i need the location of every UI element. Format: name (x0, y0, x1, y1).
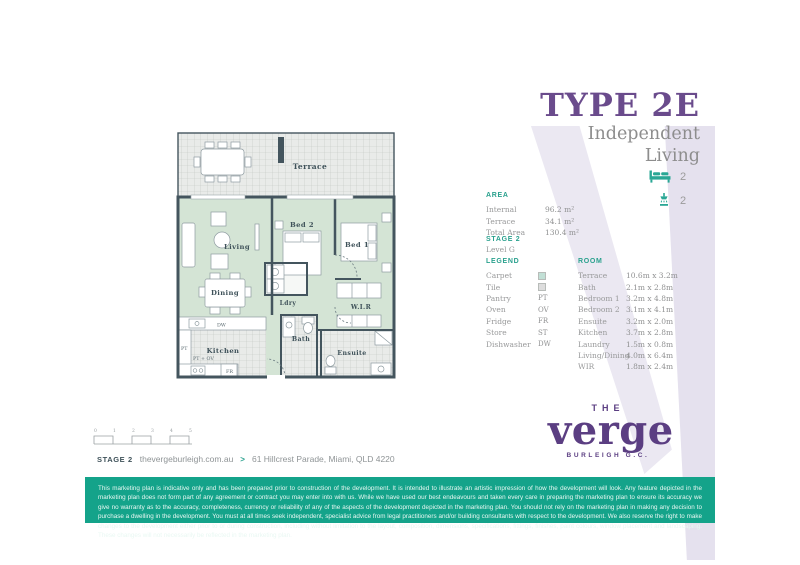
legend-row: Dishwasher DW (486, 338, 576, 349)
disclaimer-text: This marketing plan is indicative only a… (98, 484, 702, 541)
living-label: Living (224, 243, 250, 251)
stage-level: Level G (486, 245, 616, 254)
legend-heading: LEGEND (486, 258, 576, 265)
logo-name: verge (548, 413, 668, 449)
pt-ov-code-label: PT + OV (193, 356, 214, 362)
footer-website: thevergeburleigh.com.au (140, 454, 234, 464)
bath-label: Bath (292, 336, 310, 343)
legend-label: Pantry (486, 294, 538, 303)
room-dims: 4.0m x 6.4m (626, 351, 673, 360)
room-row: Bedroom 2 3.1m x 4.1m (578, 304, 703, 315)
dining-label: Dining (211, 289, 239, 297)
page-title: TYPE 2E (540, 86, 700, 124)
dw-code-label: DW (217, 323, 226, 329)
legend-code: PT (538, 294, 547, 302)
bed-icon (649, 168, 671, 187)
scale-tick-1: 1 (113, 428, 116, 434)
bath-count: 2 (680, 195, 688, 207)
area-row-value: 96.2 m² (545, 205, 574, 214)
footer-address: 61 Hillcrest Parade, Miami, QLD 4220 (252, 454, 395, 464)
page-subtitle-line2: Living (645, 146, 700, 166)
marketing-plan-page: TYPE 2E Independent Living 2 (0, 0, 800, 565)
room-dims: 1.5m x 0.8m (626, 340, 673, 349)
footer: STAGE 2 thevergeburleigh.com.au > 61 Hil… (97, 454, 395, 464)
room-row: WIR 1.8m x 2.4m (578, 361, 703, 372)
legend-label: Oven (486, 305, 538, 314)
room-name: Laundry (578, 340, 626, 349)
pt-code-label: PT (181, 346, 188, 352)
legend-row: Pantry PT (486, 293, 576, 304)
bed1-label: Bed 1 (345, 241, 369, 249)
room-section: ROOM Terrace 10.6m x 3.2m Bath 2.1m x 2.… (578, 258, 703, 373)
room-row: Bath 2.1m x 2.8m (578, 281, 703, 292)
room-dims: 3.2m x 2.0m (626, 317, 673, 326)
area-row-label: Terrace (486, 217, 545, 226)
footer-stage-label: STAGE 2 (97, 455, 133, 464)
room-row: Ensuite 3.2m x 2.0m (578, 316, 703, 327)
ensuite-label: Ensuite (337, 350, 366, 357)
legend-row: Oven OV (486, 304, 576, 315)
legend-label: Tile (486, 283, 538, 292)
disclaimer-bar: This marketing plan is indicative only a… (85, 477, 715, 523)
legend-code: ST (538, 329, 547, 337)
room-name: Living/Dining (578, 351, 626, 360)
room-name: Kitchen (578, 328, 626, 337)
room-name: Bedroom 2 (578, 305, 626, 314)
area-heading: AREA (486, 192, 616, 199)
room-row: Laundry 1.5m x 0.8m (578, 338, 703, 349)
legend-code: DW (538, 340, 551, 348)
scale-tick-2: 2 (132, 428, 135, 434)
area-row: Internal 96.2 m² (486, 204, 616, 215)
legend-label: Fridge (486, 317, 538, 326)
wir-label: W.I.R (350, 304, 372, 311)
kitchen-label: Kitchen (207, 347, 240, 355)
area-row-value: 34.1 m² (545, 217, 574, 226)
room-name: Bath (578, 283, 626, 292)
scale-tick-3: 3 (151, 428, 154, 434)
room-dims: 1.8m x 2.4m (626, 362, 673, 371)
legend-row: Tile (486, 281, 576, 292)
room-dims: 3.7m x 2.8m (626, 328, 673, 337)
room-name: Terrace (578, 271, 626, 280)
fr-code-label: FR (226, 369, 233, 375)
bed2-label: Bed 2 (290, 221, 314, 229)
chevron-right-icon: > (240, 455, 245, 464)
bedroom-count-row: 2 (649, 165, 688, 189)
room-row: Living/Dining 4.0m x 6.4m (578, 350, 703, 361)
legend-row: Store ST (486, 327, 576, 338)
room-row: Terrace 10.6m x 3.2m (578, 270, 703, 281)
legend-label: Store (486, 328, 538, 337)
room-dims: 10.6m x 3.2m (626, 271, 678, 280)
room-name: Bedroom 1 (578, 294, 626, 303)
room-dims: 3.2m x 4.8m (626, 294, 673, 303)
dwelling-stats: 2 2 (649, 165, 688, 213)
terrace-label: Terrace (293, 162, 327, 171)
room-name: Ensuite (578, 317, 626, 326)
stage-section: STAGE 2 Level G (486, 236, 616, 254)
room-row: Bedroom 1 3.2m x 4.8m (578, 293, 703, 304)
scale-tick-4: 4 (170, 428, 173, 434)
bathroom-count-row: 2 (649, 189, 688, 213)
area-section: AREA Internal 96.2 m² Terrace 34.1 m² To… (486, 192, 616, 238)
room-dims: 3.1m x 4.1m (626, 305, 673, 314)
ldry-label: Ldry (280, 300, 297, 307)
page-subtitle-line1: Independent (588, 124, 700, 144)
legend-row: Carpet (486, 270, 576, 281)
area-row-label: Internal (486, 205, 545, 214)
scale-tick-5: 5 (189, 428, 192, 434)
carpet-swatch (538, 272, 546, 280)
room-row: Kitchen 3.7m x 2.8m (578, 327, 703, 338)
room-dims: 2.1m x 2.8m (626, 283, 673, 292)
legend-label: Dishwasher (486, 340, 538, 349)
scale-tick-0: 0 (94, 428, 97, 434)
bed-count: 2 (680, 171, 688, 183)
legend-label: Carpet (486, 271, 538, 280)
stage-heading: STAGE 2 (486, 236, 616, 243)
legend-section: LEGEND Carpet Tile Pantry PT Oven OV Fri… (486, 258, 576, 350)
area-row: Terrace 34.1 m² (486, 215, 616, 226)
room-heading: ROOM (578, 258, 703, 265)
tile-swatch (538, 283, 546, 291)
verge-logo: THE verge BURLEIGH G.C. (548, 403, 668, 459)
floor-plan: Terrace Living Dining (175, 127, 397, 382)
legend-code: FR (538, 317, 548, 325)
shower-icon (657, 192, 671, 211)
legend-code: OV (538, 306, 549, 314)
room-name: WIR (578, 362, 626, 371)
scale-bar: 0 1 2 3 4 5 (92, 427, 194, 453)
legend-row: Fridge FR (486, 316, 576, 327)
